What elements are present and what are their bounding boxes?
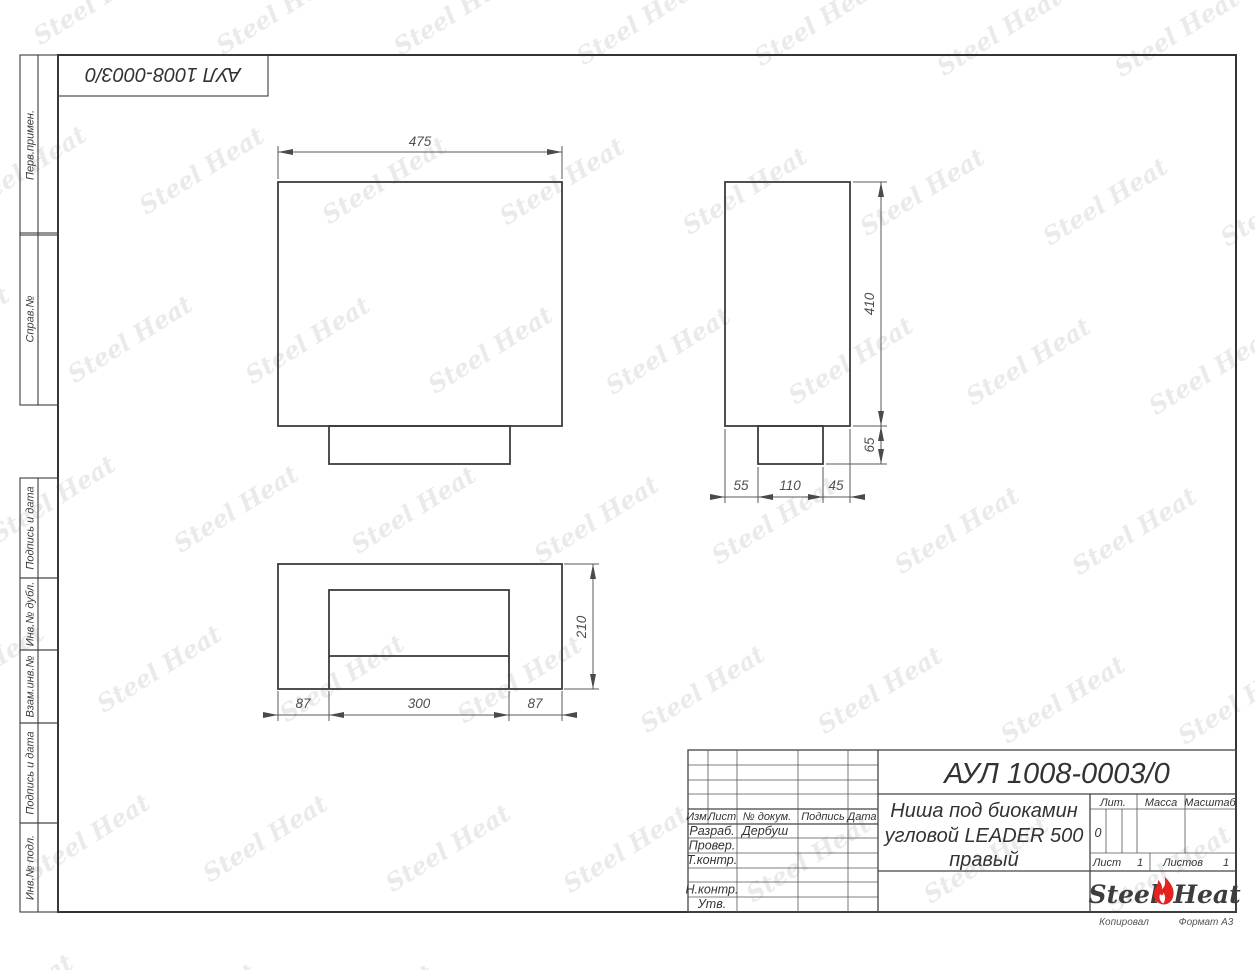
dim-value: 55 xyxy=(733,478,749,493)
dim-value: 65 xyxy=(862,437,877,453)
logo-text-left: Steel xyxy=(1089,880,1160,909)
logo-text-right: Heat xyxy=(1172,880,1241,909)
tb-sheets-label: Листов xyxy=(1162,857,1203,869)
tb-sheet-label: Лист xyxy=(1092,857,1121,869)
tb-sheet-value: 1 xyxy=(1137,857,1143,869)
tb-staff-label: Н.контр. xyxy=(686,883,739,897)
tb-designation: АУЛ 1008-0003/0 xyxy=(942,758,1169,790)
tb-mass-label: Масса xyxy=(1145,797,1178,809)
dim-value: 87 xyxy=(295,696,311,711)
dim-value: 210 xyxy=(574,615,589,639)
drawing-sheet: Steel Heat Steel Heat АУЛ 1008-0003/0 Пе… xyxy=(0,0,1255,970)
tb-sheets-value: 1 xyxy=(1223,857,1229,869)
sidebar-label: Взам.инв.№ xyxy=(25,655,37,717)
sidebar-label: Подпись и дата xyxy=(25,486,37,569)
corner-stamp-text: АУЛ 1008-0003/0 xyxy=(85,63,242,85)
dim-value: 300 xyxy=(408,696,431,711)
tb-lit-label: Лит. xyxy=(1099,797,1126,809)
tb-staff-label: Разраб. xyxy=(689,824,734,838)
dim-value: 410 xyxy=(862,292,877,315)
tb-name-line: угловой LEADER 500 xyxy=(883,825,1084,847)
dim-value: 45 xyxy=(828,478,844,493)
sidebar-label: Инв.№ дубл. xyxy=(25,582,37,647)
footer-copied: Копировал xyxy=(1099,917,1149,928)
tb-staff-label: Провер. xyxy=(689,839,736,853)
footer-format: Формат А3 xyxy=(1179,917,1234,928)
sidebar-label: Подпись и дата xyxy=(25,731,37,814)
tb-name-line: Ниша под биокамин xyxy=(890,800,1078,822)
tb-scale-label: Масштаб xyxy=(1184,797,1236,809)
tb-header-list: Лист xyxy=(707,811,736,823)
tb-header-date: Дата xyxy=(845,811,876,823)
tb-name-line: правый xyxy=(949,849,1019,871)
dim-value: 110 xyxy=(779,478,801,493)
tb-header-sign: Подпись xyxy=(801,811,845,823)
tb-header-izm: Изм. xyxy=(686,811,709,823)
tb-staff-label: Утв. xyxy=(697,897,726,911)
drawing-canvas: Steel Heat Steel Heat АУЛ 1008-0003/0 Пе… xyxy=(0,0,1255,970)
sidebar-label: Инв.№ подл. xyxy=(25,835,37,900)
tb-staff-label: Т.контр. xyxy=(687,853,737,867)
sidebar-label: Перв.примен. xyxy=(25,110,37,180)
sidebar-label: Справ.№ xyxy=(25,295,37,342)
tb-header-doc: № докум. xyxy=(743,811,791,823)
dim-value: 475 xyxy=(409,134,432,149)
tb-lit-value: 0 xyxy=(1095,826,1102,840)
tb-staff-value: Дербуш xyxy=(740,824,789,838)
dim-value: 87 xyxy=(527,696,543,711)
